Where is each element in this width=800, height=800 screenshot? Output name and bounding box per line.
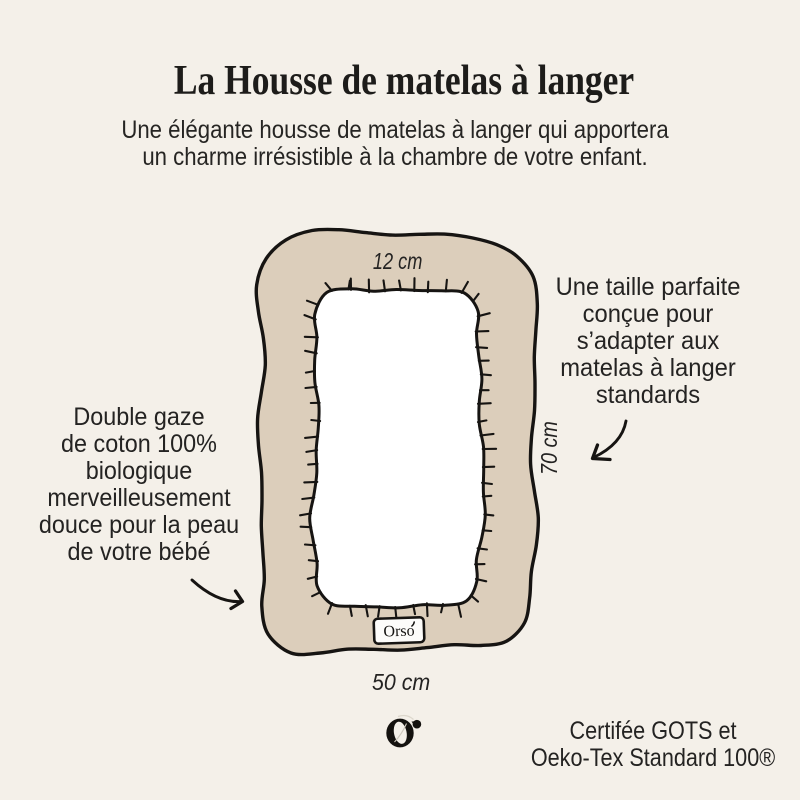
svg-text:Orso: Orso <box>383 622 415 640</box>
